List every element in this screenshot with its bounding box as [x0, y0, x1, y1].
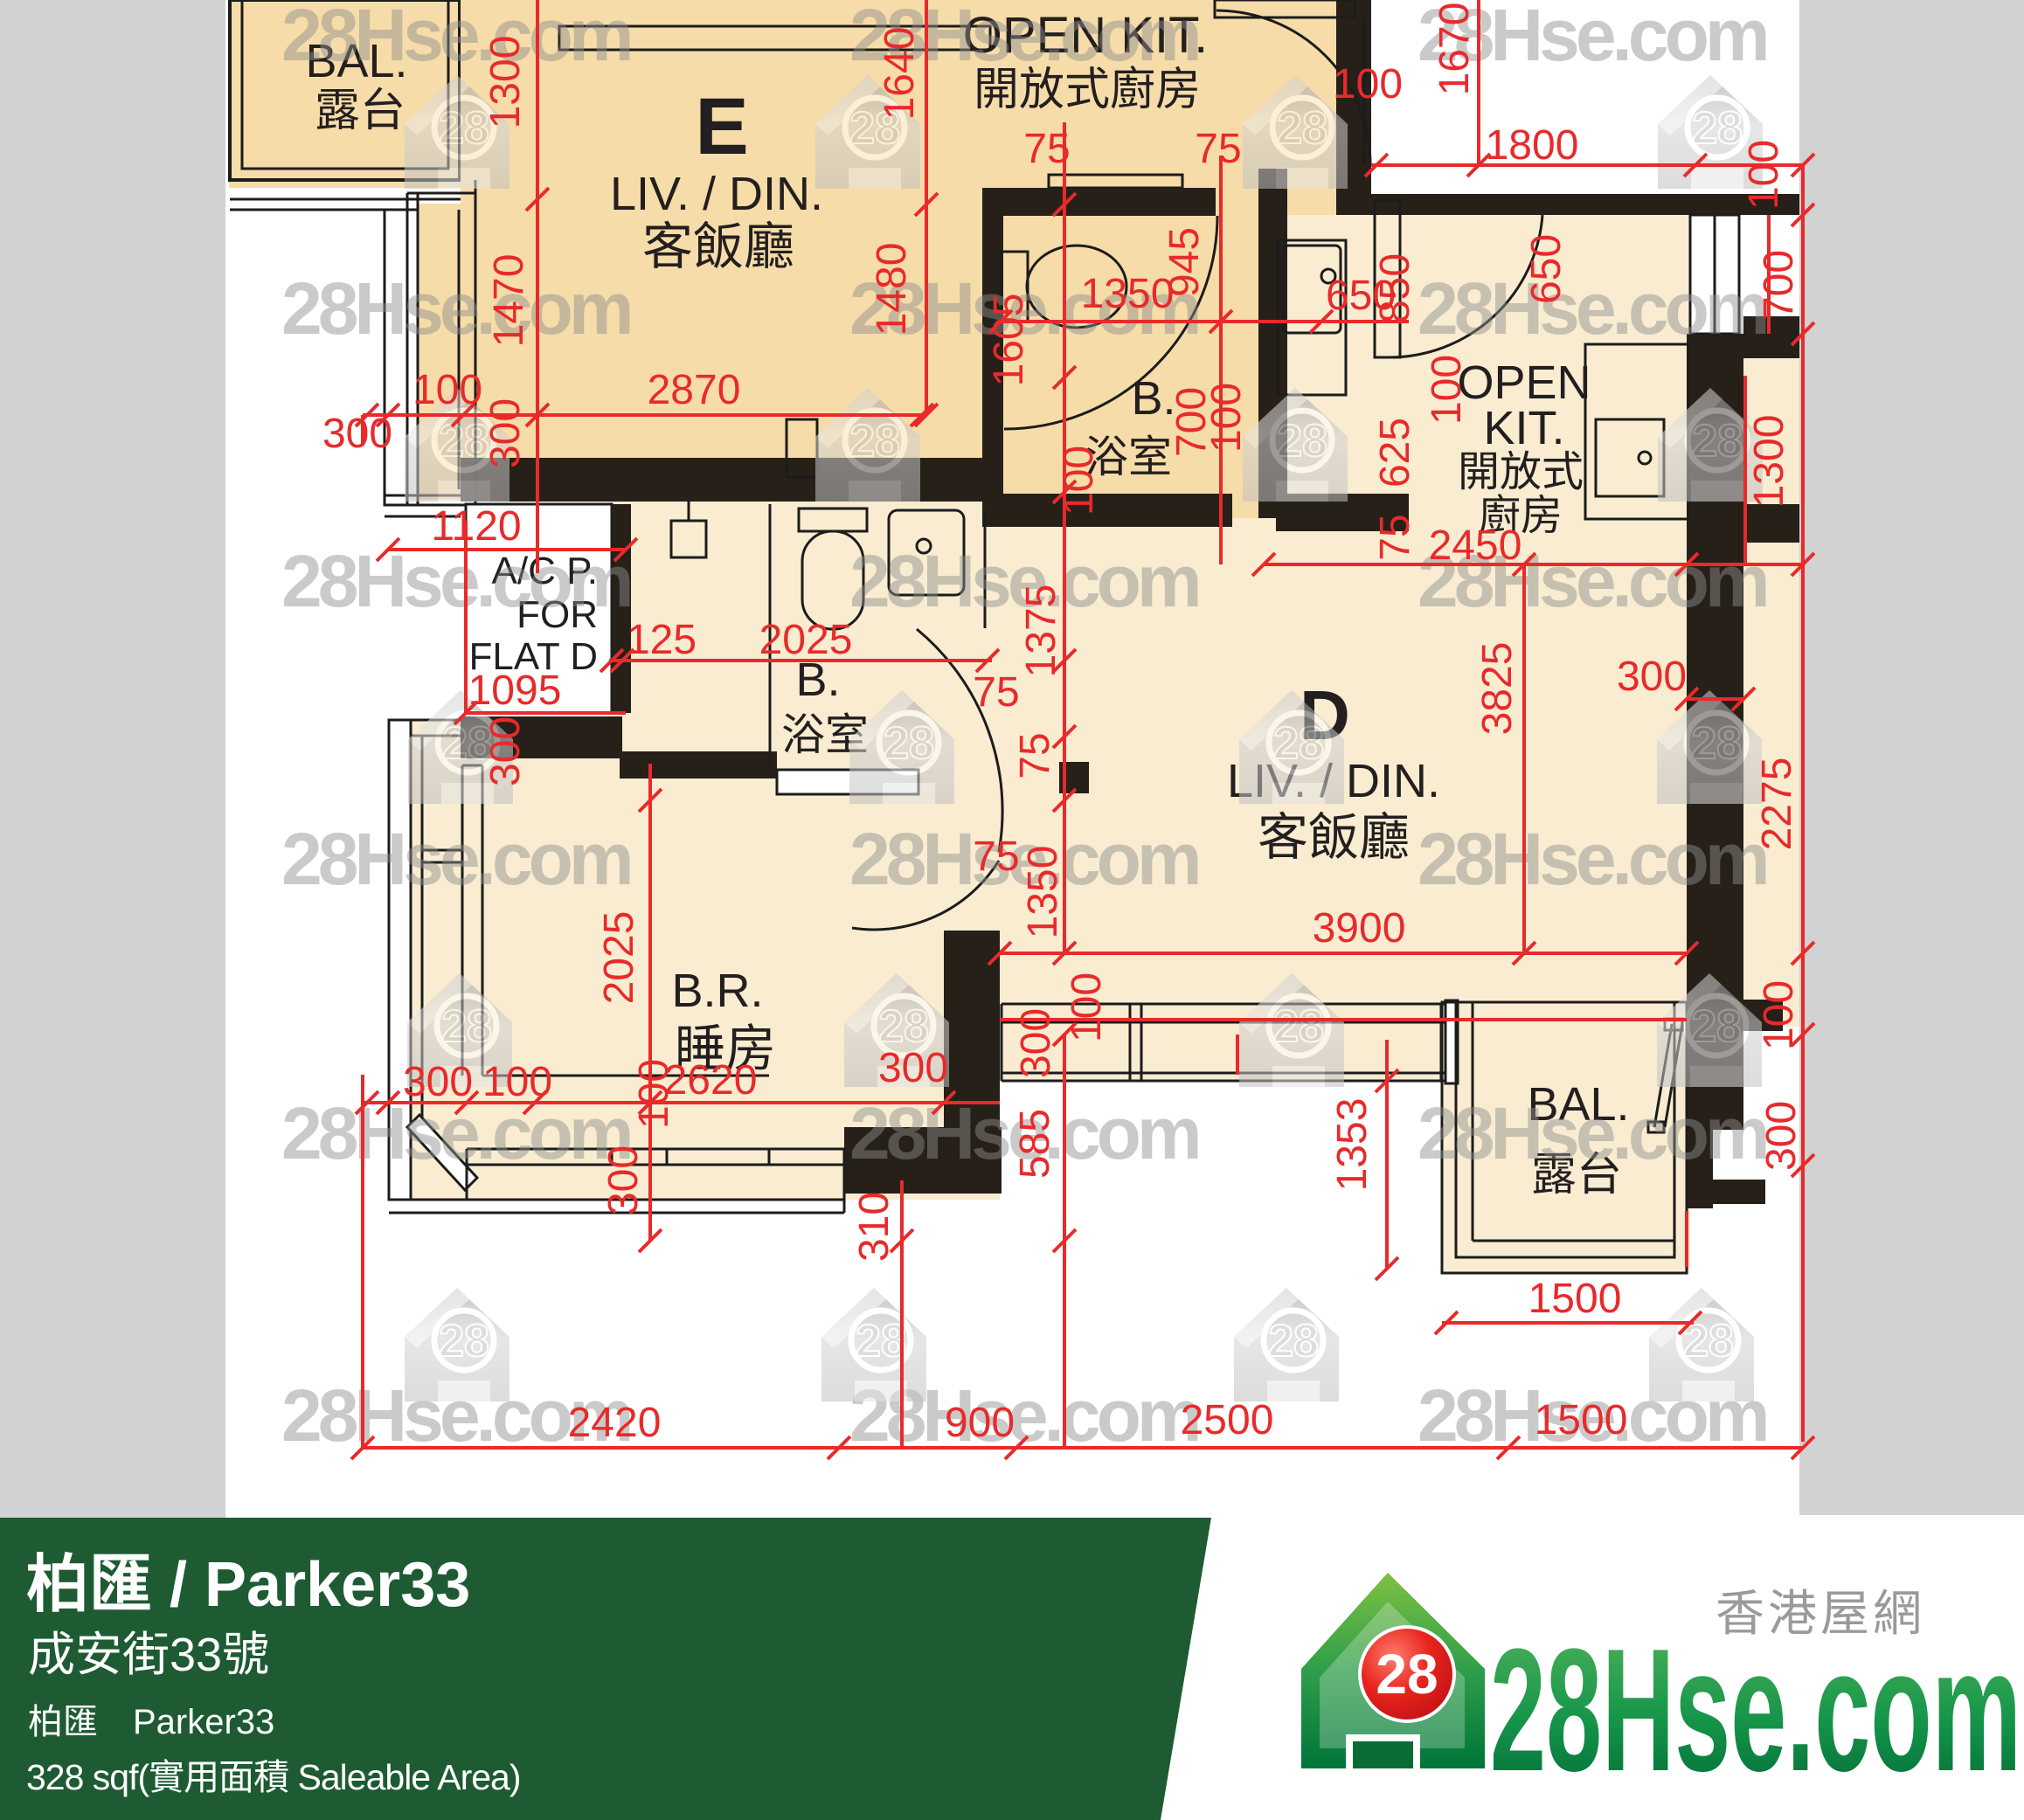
- svg-text:28Hse.com: 28Hse.com: [281, 267, 630, 349]
- svg-text:成安街33號: 成安街33號: [28, 1629, 269, 1681]
- svg-text:28Hse.com: 28Hse.com: [281, 818, 630, 900]
- svg-text:客飯廳: 客飯廳: [1258, 809, 1410, 866]
- svg-text:100: 100: [1756, 980, 1802, 1050]
- svg-text:2025: 2025: [596, 911, 642, 1005]
- svg-text:LIV. / DIN.: LIV. / DIN.: [610, 168, 823, 220]
- svg-text:100: 100: [1203, 383, 1250, 453]
- svg-text:1300: 1300: [1746, 415, 1792, 509]
- svg-text:650: 650: [1523, 234, 1570, 304]
- svg-text:28Hse.com: 28Hse.com: [281, 0, 630, 76]
- svg-text:100: 100: [631, 1059, 677, 1129]
- svg-text:2500: 2500: [1181, 1397, 1274, 1443]
- svg-text:露台: 露台: [315, 86, 405, 136]
- svg-text:75: 75: [1372, 514, 1418, 560]
- svg-text:300: 300: [322, 411, 392, 457]
- svg-text:75: 75: [973, 834, 1019, 880]
- svg-text:75: 75: [973, 669, 1019, 716]
- svg-text:1670: 1670: [1431, 3, 1478, 96]
- svg-text:柏匯 Parker33: 柏匯 Parker33: [28, 1703, 274, 1741]
- svg-text:100: 100: [1064, 972, 1110, 1042]
- svg-text:850: 850: [1372, 253, 1418, 323]
- svg-text:1640: 1640: [877, 27, 923, 121]
- svg-text:1500: 1500: [1528, 1276, 1622, 1322]
- svg-text:100: 100: [482, 1059, 552, 1105]
- svg-text:585: 585: [1012, 1109, 1058, 1179]
- svg-text:1470: 1470: [486, 254, 532, 348]
- svg-text:100: 100: [1333, 61, 1403, 107]
- svg-text:300: 300: [1617, 654, 1687, 700]
- svg-text:KIT.: KIT.: [1483, 402, 1564, 454]
- svg-text:945: 945: [1161, 227, 1208, 297]
- svg-text:1353: 1353: [1329, 1098, 1376, 1192]
- svg-text:310: 310: [851, 1192, 898, 1262]
- svg-text:2870: 2870: [648, 367, 741, 413]
- svg-text:28Hse.com: 28Hse.com: [1417, 818, 1766, 900]
- svg-text:客飯廳: 客飯廳: [642, 218, 794, 275]
- svg-text:3900: 3900: [1313, 905, 1406, 952]
- svg-text:開放式: 開放式: [1458, 449, 1584, 495]
- svg-text:1375: 1375: [1018, 585, 1064, 678]
- svg-text:300: 300: [403, 1059, 473, 1105]
- svg-text:1300: 1300: [482, 36, 529, 129]
- svg-text:1605: 1605: [986, 294, 1032, 387]
- svg-text:2025: 2025: [759, 617, 853, 663]
- svg-text:300: 300: [482, 716, 529, 786]
- svg-text:28Hse.com: 28Hse.com: [1417, 267, 1766, 349]
- svg-text:100: 100: [1424, 355, 1470, 425]
- svg-text:2620: 2620: [664, 1057, 758, 1104]
- svg-text:625: 625: [1372, 418, 1418, 488]
- svg-text:1350: 1350: [1081, 271, 1175, 317]
- svg-text:1480: 1480: [869, 243, 915, 336]
- svg-text:28: 28: [1376, 1643, 1438, 1706]
- svg-text:E: E: [695, 82, 748, 171]
- svg-text:1095: 1095: [468, 668, 562, 714]
- svg-text:1350: 1350: [1020, 846, 1066, 939]
- svg-text:28Hse.com: 28Hse.com: [1490, 1613, 2021, 1808]
- svg-text:300: 300: [878, 1045, 948, 1091]
- svg-text:28Hse.com: 28Hse.com: [281, 540, 630, 622]
- svg-text:75: 75: [1023, 126, 1070, 172]
- svg-text:100: 100: [1741, 140, 1787, 210]
- svg-text:3825: 3825: [1474, 642, 1521, 736]
- svg-text:75: 75: [1195, 126, 1241, 172]
- svg-text:2275: 2275: [1754, 758, 1800, 851]
- svg-text:900: 900: [945, 1400, 1015, 1446]
- svg-text:28Hse.com: 28Hse.com: [1417, 1092, 1766, 1174]
- svg-text:700: 700: [1756, 250, 1802, 320]
- svg-text:125: 125: [627, 617, 697, 663]
- svg-text:1800: 1800: [1486, 122, 1579, 169]
- svg-text:100: 100: [1056, 446, 1102, 516]
- svg-text:300: 300: [1758, 1101, 1805, 1171]
- svg-text:75: 75: [1012, 732, 1058, 779]
- svg-text:柏匯 / Parker33: 柏匯 / Parker33: [26, 1550, 470, 1620]
- svg-text:2450: 2450: [1429, 522, 1522, 569]
- svg-text:OPEN: OPEN: [1457, 356, 1591, 409]
- svg-text:300: 300: [600, 1145, 647, 1215]
- svg-text:328 sqf(實用面積 Saleable Area): 328 sqf(實用面積 Saleable Area): [26, 1757, 521, 1797]
- svg-text:B.R.: B.R.: [671, 965, 763, 1017]
- svg-text:1120: 1120: [431, 503, 521, 550]
- svg-text:100: 100: [412, 367, 482, 413]
- svg-text:300: 300: [482, 398, 529, 468]
- svg-text:1500: 1500: [1535, 1397, 1628, 1443]
- svg-text:2420: 2420: [568, 1400, 662, 1446]
- svg-text:300: 300: [1013, 1008, 1059, 1078]
